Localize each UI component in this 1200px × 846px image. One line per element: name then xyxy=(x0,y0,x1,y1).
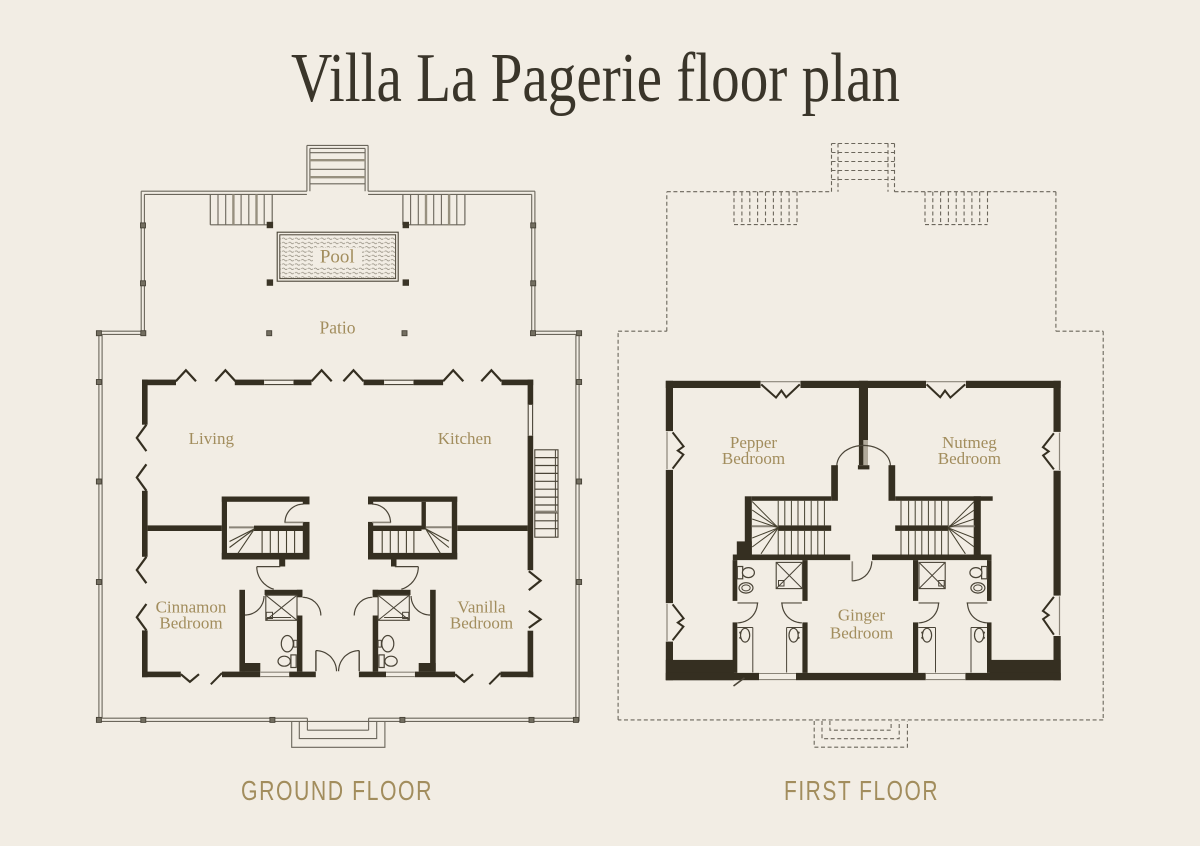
svg-text:Ginger: Ginger xyxy=(838,606,886,625)
svg-text:GROUND FLOOR: GROUND FLOOR xyxy=(241,775,433,806)
svg-text:Bedroom: Bedroom xyxy=(938,449,1001,468)
svg-text:Bedroom: Bedroom xyxy=(830,624,893,643)
svg-text:Patio: Patio xyxy=(320,318,356,338)
svg-text:Bedroom: Bedroom xyxy=(159,614,222,633)
svg-text:Pool: Pool xyxy=(320,247,355,268)
svg-text:FIRST FLOOR: FIRST FLOOR xyxy=(784,775,939,806)
svg-text:Living: Living xyxy=(189,429,235,448)
svg-text:Villa La Pagerie floor plan: Villa La Pagerie floor plan xyxy=(291,40,900,117)
svg-text:Bedroom: Bedroom xyxy=(450,614,513,633)
svg-text:Kitchen: Kitchen xyxy=(438,429,492,448)
svg-text:Bedroom: Bedroom xyxy=(722,449,785,468)
